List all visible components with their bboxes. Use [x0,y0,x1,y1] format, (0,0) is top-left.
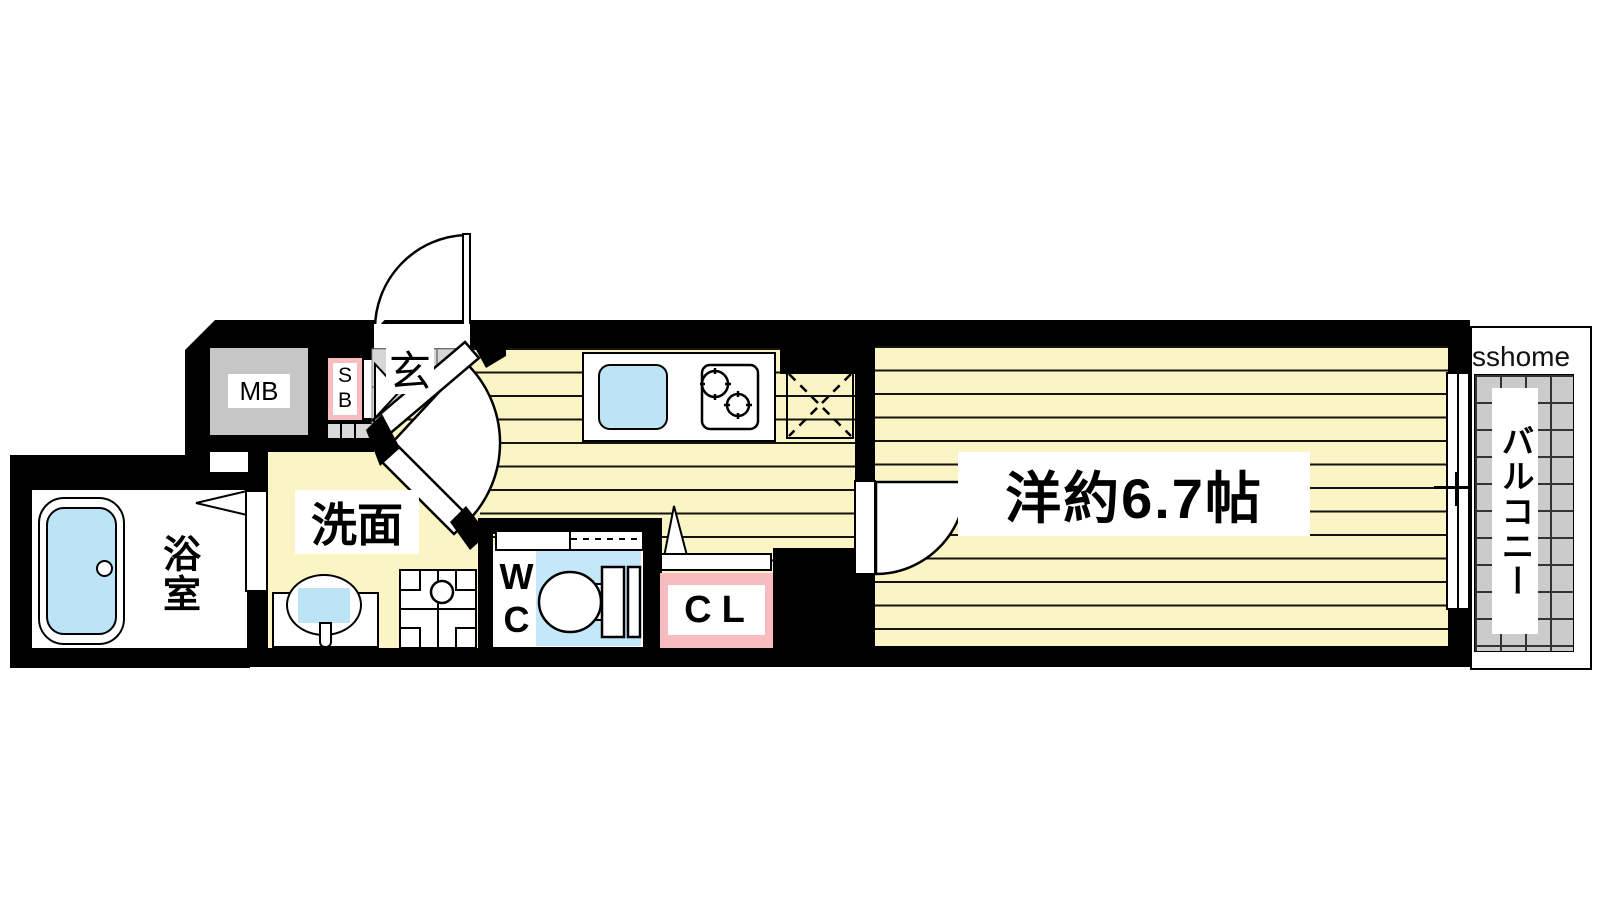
washroom-label: 洗面 [295,490,419,554]
entrance-label: 玄 [386,342,434,394]
bathroom-door-swing-icon [192,488,250,518]
kitchen-wall [780,330,857,374]
wash-basin-water [298,588,350,623]
wall-opening [210,452,248,472]
wc-upper-shelf [569,530,644,551]
balcony-label: バルコニー [1492,388,1538,634]
washing-machine-pan-icon [398,568,478,650]
wall-mass [773,548,857,648]
wc-wall [478,518,493,648]
floor-plan: MB SB 玄 [0,0,1600,900]
stove-icon [700,363,762,433]
closet-door [660,553,772,571]
wc-label: WC [497,554,535,644]
refrigerator-space-icon [785,370,855,440]
bathroom-door-leaf [245,490,268,592]
kitchen-sink [598,364,668,430]
closet-label: CL [668,585,765,635]
watermark: sshome [1472,341,1590,373]
bathroom-label: 浴室 [156,522,200,626]
main-room-label: 洋約6.7帖 [958,452,1310,536]
toilet-icon [536,560,642,642]
room-door-leaf [854,480,876,575]
balcony-window [1446,372,1470,610]
wc-shelf [495,530,571,551]
bathtub-drain [96,560,113,577]
window-tick [1455,472,1458,506]
room-door-swing-icon [874,479,970,577]
meter-box-label: MB [228,374,290,408]
faucet-icon [319,622,332,648]
